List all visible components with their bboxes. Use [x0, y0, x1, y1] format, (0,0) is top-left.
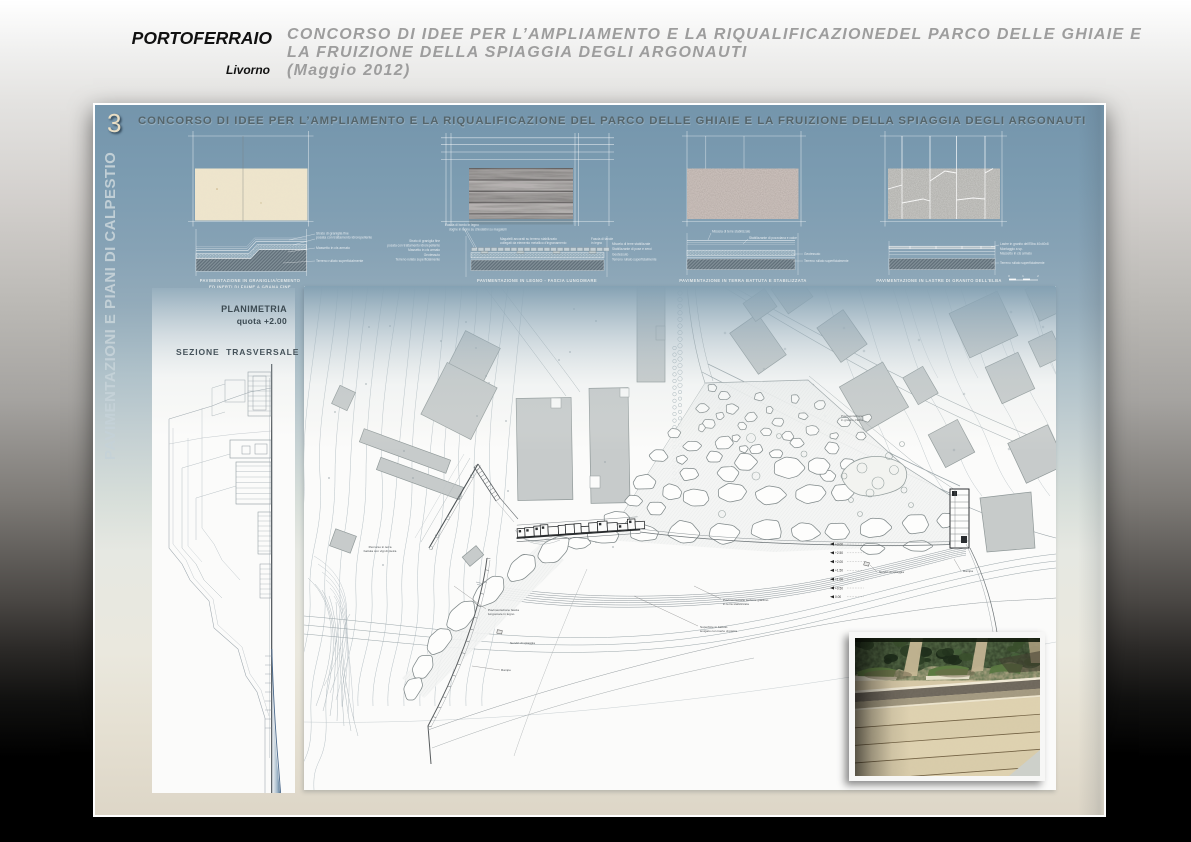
svg-text:Stabilizzante di pose e xeroi: Stabilizzante di pose e xeroi [612, 247, 652, 251]
svg-text:Strato di graniglia fine: Strato di graniglia fine [409, 239, 440, 243]
svg-text:PAVIMENTAZIONE IN LASTRE DI: PAVIMENTAZIONE IN LASTRE DI GRANITO DELL… [876, 278, 1002, 283]
svg-text:PAVIMENTAZIONE IN TERRA BATTUT: PAVIMENTAZIONE IN TERRA BATTUTA E STABIL… [679, 278, 807, 283]
svg-text:+1.50: +1.50 [835, 569, 843, 573]
svg-text:2: 2 [1037, 274, 1039, 278]
svg-text:PAVIMENTAZIONE IN LEGNO - FASC: PAVIMENTAZIONE IN LEGNO - FASCIA LUNGOMA… [477, 278, 597, 283]
svg-text:Geotessuto: Geotessuto [424, 253, 441, 257]
svg-text:Geotessuto: Geotessuto [804, 252, 821, 256]
svg-text:Terreno rullato superficialmen: Terreno rullato superficialmente [804, 259, 849, 263]
svg-text:Lastre in granito dell'Elba 40: Lastre in granito dell'Elba 40x40x8 [1000, 242, 1049, 246]
svg-text:Massetto in cls armato: Massetto in cls armato [1000, 252, 1032, 256]
svg-text:Geotessuto: Geotessuto [612, 252, 629, 256]
svg-text:Terreno rullato superficialmen: Terreno rullato superficialmente [316, 259, 363, 263]
svg-text:posata con trattamento idrorep: posata con trattamento idrorepellente [316, 236, 372, 240]
svg-text:+2.00: +2.00 [835, 560, 843, 564]
svg-text:battuta con vigi di pietra: battuta con vigi di pietra [364, 549, 397, 553]
svg-text:Miscela di terre stabilizzate: Miscela di terre stabilizzate [612, 242, 650, 246]
svg-text:Massetto in cls armato: Massetto in cls armato [408, 248, 440, 252]
svg-text:PAVIMENTAZIONE IN GRANIGLIA/CE: PAVIMENTAZIONE IN GRANIGLIA/CEMENTO [200, 278, 301, 283]
svg-text:Terreno rullato superficialmen: Terreno rullato superficialmente [396, 257, 441, 261]
svg-text:Massetto in cls armato: Massetto in cls armato [316, 246, 350, 250]
svg-text:in terra stabilizzata: in terra stabilizzata [723, 602, 749, 606]
svg-text:Servizi di spiaggia: Servizi di spiaggia [879, 570, 904, 574]
svg-text:+3.00: +3.00 [835, 542, 843, 546]
svg-text:Servizi di spiaggia: Servizi di spiaggia [510, 641, 535, 645]
svg-text:doghe in legno su chiodatini s: doghe in legno su chiodatini su magatell… [449, 228, 507, 232]
svg-text:1: 1 [1022, 274, 1024, 278]
svg-text:Terreno rullato superficialmen: Terreno rullato superficialmente [1000, 261, 1045, 265]
svg-text:Montaggio a sp.: Montaggio a sp. [1000, 247, 1023, 251]
svg-text:Terreno rullato superficialmen: Terreno rullato superficialmente [612, 258, 657, 262]
svg-text:+2.50: +2.50 [835, 551, 843, 555]
svg-text:levigato con inerte di pietra: levigato con inerte di pietra [700, 629, 737, 633]
svg-text:in legno: in legno [591, 241, 602, 245]
svg-text:Stabilizzante di pozzolana e c: Stabilizzante di pozzolana e calce [749, 236, 797, 240]
svg-text:Miscela di terre stabilizzate: Miscela di terre stabilizzate [712, 230, 750, 234]
svg-text:collegati da elemento metallic: collegati da elemento metallico d'ingran… [500, 241, 567, 245]
svg-text:0.00: 0.00 [835, 595, 841, 599]
svg-text:lungomare in legno: lungomare in legno [488, 612, 515, 616]
svg-text:Rampe: Rampe [501, 668, 511, 672]
svg-text:+0.50: +0.50 [835, 586, 843, 590]
svg-text:Rampa: Rampa [963, 569, 973, 573]
svg-text:posata con trattamento idrorep: posata con trattamento idrorepellente [387, 244, 440, 248]
svg-text:0: 0 [1008, 274, 1010, 278]
svg-text:+1.00: +1.00 [835, 578, 843, 582]
svg-text:Fascia di bordo in legno: Fascia di bordo in legno [445, 223, 479, 227]
